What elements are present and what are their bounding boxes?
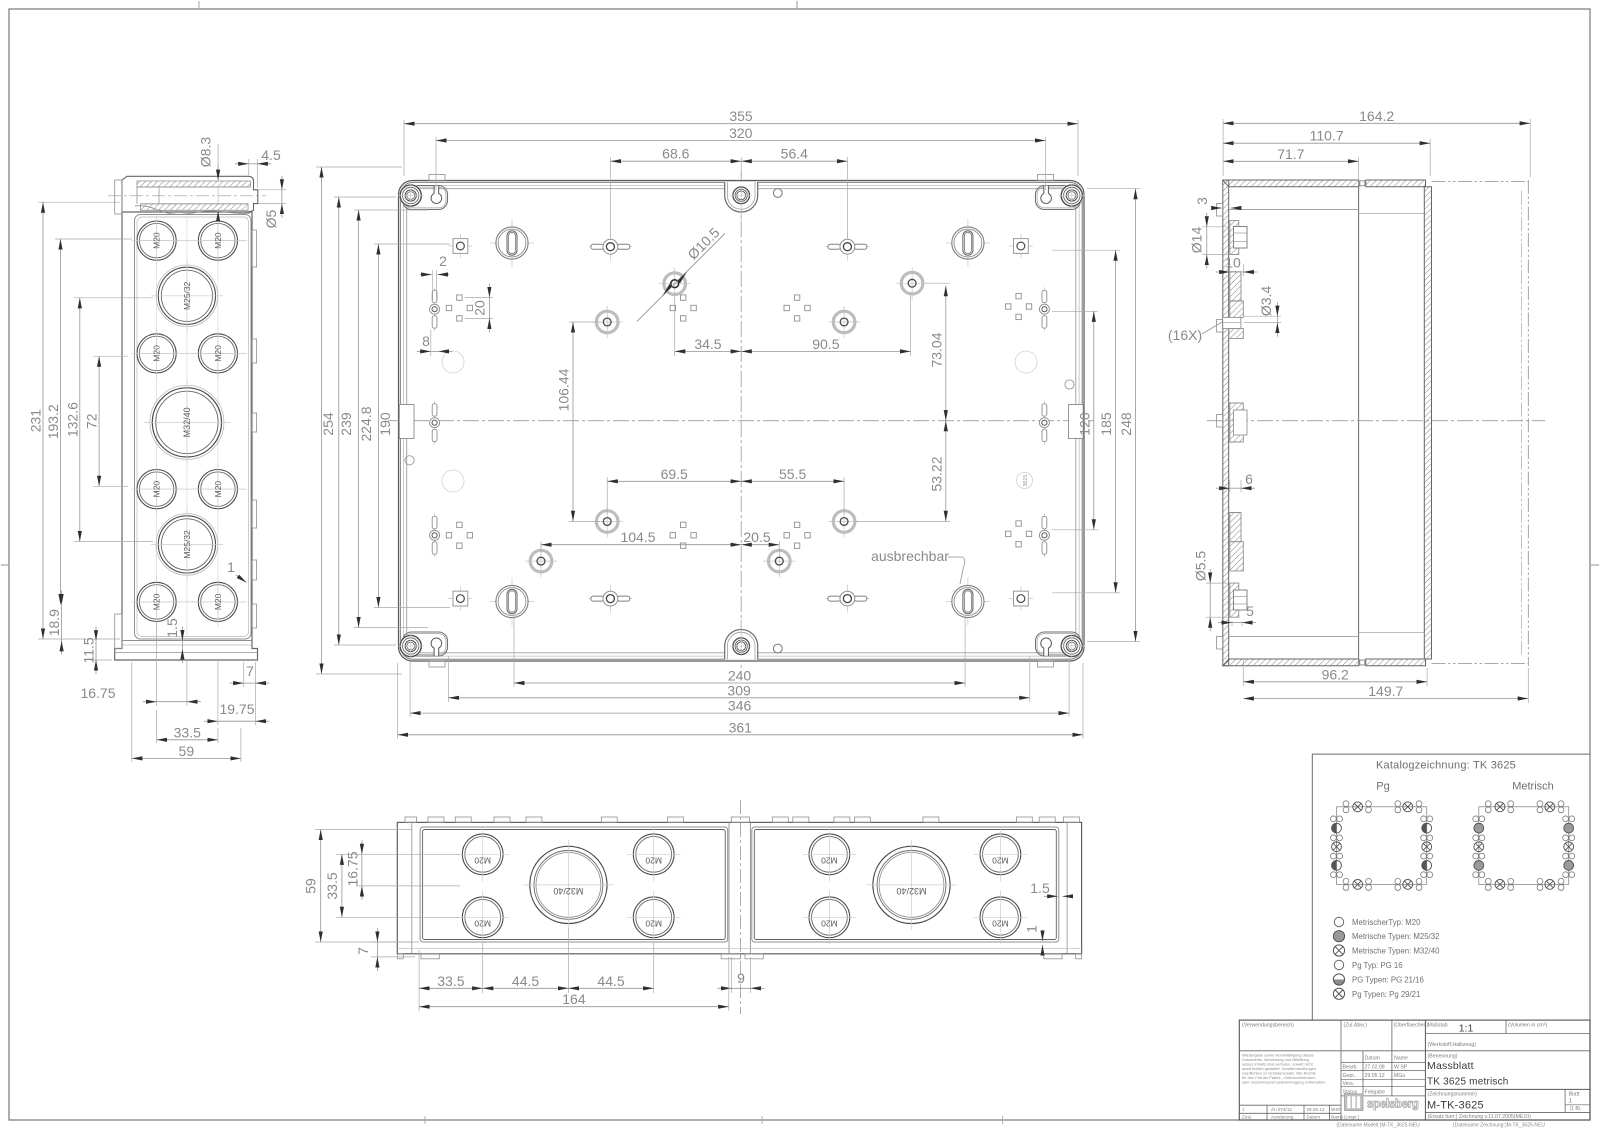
svg-text:1: 1	[1242, 1107, 1245, 1112]
svg-text:MGu: MGu	[1394, 1073, 1405, 1079]
svg-text:(Zeichnungsnummer): (Zeichnungsnummer)	[1428, 1092, 1478, 1098]
svg-text:240: 240	[728, 668, 752, 684]
svg-text:29.05.12: 29.05.12	[1365, 1073, 1385, 1079]
svg-text:(Werkstoff,Halbzeug): (Werkstoff,Halbzeug)	[1428, 1042, 1477, 1048]
svg-text:(Ersatz fuer:) Zeichnung v.11: (Ersatz fuer:) Zeichnung v.11.07.2005(ME…	[1428, 1114, 1532, 1120]
svg-text:132.6: 132.6	[64, 402, 80, 437]
svg-text:361: 361	[729, 719, 753, 735]
svg-text:M20: M20	[213, 232, 223, 249]
svg-text:(Zul.Abw.): (Zul.Abw.)	[1344, 1023, 1368, 1029]
svg-text:44.5: 44.5	[512, 973, 539, 989]
svg-text:PG Typen: PG 21/16: PG Typen: PG 21/16	[1352, 976, 1424, 985]
svg-text:16.75: 16.75	[80, 685, 115, 701]
svg-text:(Dateiname Modell:)M-TK_3625-N: (Dateiname Modell:)M-TK_3625-NEU	[1336, 1123, 1420, 1129]
svg-text:Name: Name	[1331, 1115, 1344, 1120]
svg-text:Metrische Typen: M32/40: Metrische Typen: M32/40	[1352, 947, 1440, 956]
svg-text:MetrischerTyp: M20: MetrischerTyp: M20	[1352, 918, 1421, 927]
svg-text:33.5: 33.5	[174, 724, 201, 740]
svg-text:1.5: 1.5	[1030, 880, 1050, 896]
svg-text:Blatt: Blatt	[1569, 1092, 1580, 1098]
svg-text:190: 190	[377, 412, 393, 436]
svg-text:Än 074/12: Än 074/12	[1271, 1106, 1292, 1112]
svg-text:56.4: 56.4	[781, 146, 808, 162]
svg-text:3625: 3625	[1023, 474, 1029, 486]
svg-text:Metrisch: Metrisch	[1512, 781, 1554, 793]
svg-text:Gepr..: Gepr..	[1343, 1073, 1357, 1079]
svg-text:27.02.08: 27.02.08	[1365, 1064, 1385, 1070]
svg-text:(Dateiname Zeichnung:)M-TK_362: (Dateiname Zeichnung:)M-TK_3625-NEU	[1453, 1123, 1545, 1129]
svg-text:72: 72	[84, 413, 100, 429]
svg-text:M20: M20	[152, 345, 162, 362]
svg-text:Pg Typen: Pg 29/21: Pg Typen: Pg 29/21	[1352, 990, 1420, 999]
svg-text:6: 6	[1245, 471, 1253, 487]
svg-text:19.75: 19.75	[219, 701, 254, 717]
svg-text:68.6: 68.6	[662, 146, 689, 162]
svg-text:4.5: 4.5	[261, 147, 281, 163]
svg-text:Freigabe: Freigabe	[1365, 1090, 1386, 1096]
svg-text:34.5: 34.5	[694, 336, 721, 352]
svg-text:346: 346	[728, 698, 752, 714]
svg-text:TK 3625 metrisch: TK 3625 metrisch	[1427, 1077, 1509, 1088]
svg-text:355: 355	[729, 108, 753, 124]
svg-text:Ø3.4: Ø3.4	[1258, 286, 1274, 317]
svg-text:Bearb.: Bearb.	[1343, 1064, 1358, 1070]
svg-text:20.5: 20.5	[743, 529, 770, 545]
svg-text:Datum: Datum	[1307, 1115, 1321, 1120]
svg-text:M25/32: M25/32	[182, 281, 192, 310]
svg-text:M20: M20	[152, 232, 162, 249]
svg-text:69.5: 69.5	[661, 466, 688, 482]
svg-text:71.7: 71.7	[1277, 146, 1304, 162]
svg-text:106.44: 106.44	[556, 368, 572, 411]
svg-text:2: 2	[439, 253, 447, 269]
svg-text:Ø14: Ø14	[1189, 227, 1205, 254]
svg-text:193.2: 193.2	[45, 404, 61, 439]
svg-text:224.8: 224.8	[358, 406, 374, 441]
svg-text:Zust.: Zust.	[1242, 1115, 1252, 1120]
svg-text:8: 8	[422, 333, 430, 349]
svg-text:309: 309	[727, 682, 751, 698]
svg-text:231: 231	[28, 409, 44, 433]
svg-text:33.5: 33.5	[324, 872, 340, 899]
svg-text:55.5: 55.5	[779, 466, 806, 482]
svg-text:90.5: 90.5	[812, 336, 839, 352]
svg-text:Datum: Datum	[1365, 1056, 1380, 1062]
svg-text:Aenderung: Aenderung	[1271, 1115, 1294, 1120]
svg-text:9: 9	[737, 970, 745, 986]
svg-text:M20: M20	[213, 345, 223, 362]
svg-text:Pg: Pg	[1376, 781, 1389, 793]
svg-text:M20: M20	[152, 481, 162, 498]
svg-text:1: 1	[227, 559, 235, 575]
svg-text:7: 7	[355, 947, 371, 955]
svg-text:Massblatt: Massblatt	[1427, 1060, 1474, 1072]
svg-text:149.7: 149.7	[1368, 683, 1403, 699]
svg-text:Metrische Typen: M25/32: Metrische Typen: M25/32	[1352, 932, 1439, 941]
svg-text:20: 20	[472, 300, 488, 316]
svg-text:(Benennung): (Benennung)	[1428, 1054, 1458, 1060]
svg-text:59: 59	[303, 878, 319, 894]
svg-text:M20: M20	[821, 856, 838, 866]
svg-text:Ø5.5: Ø5.5	[1193, 551, 1209, 582]
svg-text:M25/32: M25/32	[182, 530, 192, 559]
svg-text:(1 Bl.: (1 Bl.	[1570, 1106, 1582, 1112]
svg-text:M20: M20	[992, 856, 1009, 866]
svg-text:53.22: 53.22	[928, 456, 944, 491]
svg-text:320: 320	[729, 125, 753, 141]
svg-text:185: 185	[1098, 412, 1114, 436]
svg-text:M32/40: M32/40	[182, 407, 192, 437]
svg-text:(16X): (16X)	[1168, 327, 1202, 343]
svg-text:11.5: 11.5	[81, 637, 97, 663]
svg-text:96.2: 96.2	[1322, 666, 1349, 682]
svg-text:W SP: W SP	[1394, 1064, 1408, 1070]
svg-text:29.05.12: 29.05.12	[1307, 1107, 1325, 1112]
svg-text:M20: M20	[474, 919, 491, 929]
svg-text:248: 248	[1118, 412, 1134, 436]
svg-text:59: 59	[179, 743, 195, 759]
svg-text:1: 1	[1024, 925, 1040, 933]
svg-text:M20: M20	[213, 593, 223, 610]
svg-text:1:1: 1:1	[1459, 1023, 1474, 1035]
svg-text:Pg Typ: PG 16: Pg Typ: PG 16	[1352, 961, 1403, 970]
svg-text:(Oberflaechen): (Oberflaechen)	[1394, 1023, 1429, 1029]
svg-text:16.75: 16.75	[344, 851, 360, 886]
svg-text:ausbrechbar: ausbrechbar	[871, 548, 949, 564]
svg-text:oder Geschmacksmustereintragun: oder Geschmacksmustereintragung vorbehal…	[1242, 1080, 1326, 1085]
svg-text:(Volumen in cm³): (Volumen in cm³)	[1508, 1023, 1547, 1029]
svg-text:254: 254	[320, 412, 336, 436]
svg-text:M20: M20	[992, 919, 1009, 929]
svg-text:(Urspr.): (Urspr.)	[1344, 1115, 1360, 1120]
svg-text:44.5: 44.5	[597, 973, 624, 989]
svg-text:164: 164	[562, 991, 586, 1007]
svg-text:M-TK-3625: M-TK-3625	[1427, 1100, 1484, 1112]
svg-text:Name: Name	[1394, 1056, 1408, 1062]
svg-text:164.2: 164.2	[1359, 108, 1394, 124]
svg-text:M20: M20	[213, 481, 223, 498]
svg-text:Katalogzeichnung: TK 3625: Katalogzeichnung: TK 3625	[1376, 760, 1516, 772]
svg-text:3: 3	[1194, 197, 1210, 205]
svg-text:M20: M20	[645, 919, 662, 929]
svg-text:WSP: WSP	[1331, 1107, 1341, 1112]
svg-text:M32/40: M32/40	[896, 886, 926, 896]
svg-text:1.5: 1.5	[164, 618, 180, 638]
svg-text:104.5: 104.5	[620, 529, 655, 545]
svg-text:Ø5: Ø5	[263, 209, 279, 228]
svg-text:M20: M20	[645, 856, 662, 866]
svg-text:M32/40: M32/40	[553, 886, 583, 896]
svg-text:7: 7	[246, 663, 254, 679]
svg-text:M20: M20	[474, 856, 491, 866]
svg-text:5: 5	[1246, 603, 1254, 619]
svg-text:Ø8.3: Ø8.3	[198, 137, 214, 168]
svg-text:33.5: 33.5	[437, 973, 464, 989]
svg-text:120: 120	[1077, 412, 1093, 436]
svg-text:73.04: 73.04	[928, 332, 944, 367]
svg-text:spelsberg: spelsberg	[1367, 1099, 1419, 1111]
svg-text:M20: M20	[821, 919, 838, 929]
svg-text:M20: M20	[152, 593, 162, 610]
svg-text:239: 239	[338, 412, 354, 436]
svg-text:Maßstab: Maßstab	[1428, 1023, 1448, 1029]
svg-text:110.7: 110.7	[1310, 128, 1344, 144]
svg-text:(Verwendungsbereich): (Verwendungsbereich)	[1242, 1023, 1294, 1029]
svg-text:10: 10	[1225, 255, 1241, 271]
svg-text:Vers.: Vers.	[1343, 1081, 1355, 1087]
svg-text:18.9: 18.9	[46, 609, 62, 636]
